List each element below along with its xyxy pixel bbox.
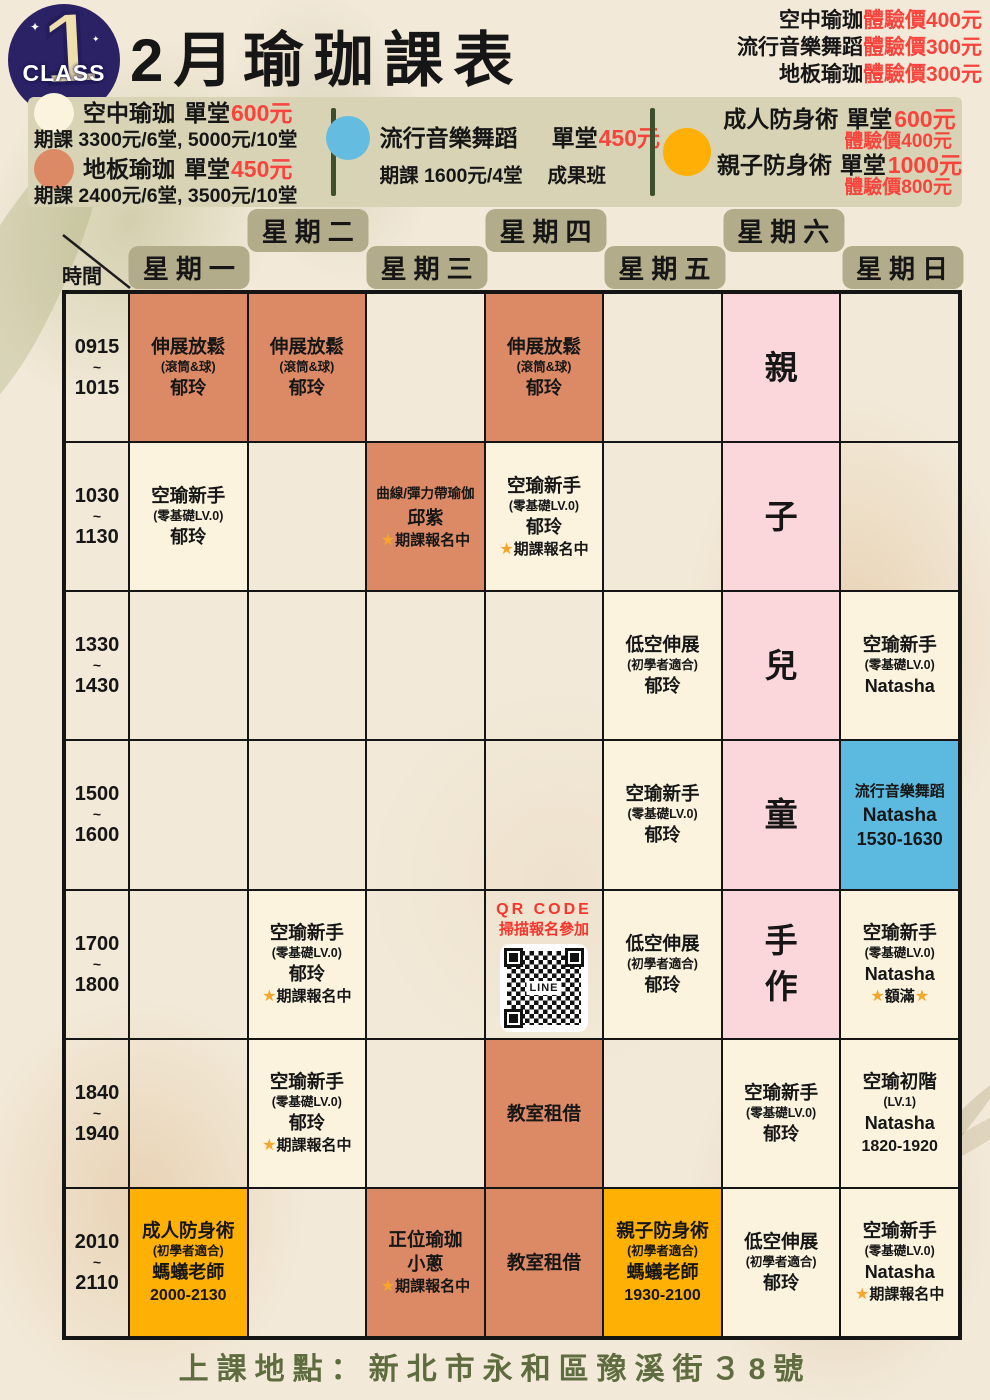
class-title: 空瑜新手: [270, 1070, 344, 1093]
star-icon: ★: [262, 988, 276, 1005]
teacher-name: 郁玲: [645, 674, 681, 698]
legend-name: 空中瑜珈: [83, 100, 175, 126]
trial-price-item: 空中瑜珈體驗價400元: [737, 7, 982, 34]
qr-signup-cell: QR CODE掃描報名參加LINE: [485, 890, 604, 1039]
time-end: 1940: [75, 1122, 120, 1146]
empty-cell: [248, 740, 367, 889]
legend-term-extra: 成果班: [548, 165, 607, 187]
legend-name: 地板瑜珈: [83, 156, 175, 182]
class-level: (零基礎LV.0): [746, 1105, 816, 1121]
legend-price: 600元: [894, 106, 955, 132]
class-title: 伸展放鬆: [507, 335, 581, 358]
theme-char: 子: [765, 494, 798, 540]
class-level: (初學者適合): [627, 956, 698, 972]
signup-note-text: 期課報名中: [395, 1278, 470, 1295]
trial-price: 體驗價300元: [863, 36, 982, 59]
class-title: 伸展放鬆: [151, 335, 225, 358]
class-level: (LV.1): [883, 1094, 916, 1110]
teacher-name: 郁玲: [526, 515, 562, 539]
day-slot: 星期六: [724, 214, 843, 290]
time-slot: 1500~1600: [65, 740, 129, 889]
class-title: 空瑜新手: [863, 633, 937, 656]
signup-note-text: 期課報名中: [514, 541, 589, 558]
empty-cell: [485, 591, 604, 740]
schedule-poster: 1 CLASS ✦ ✦ 2月瑜珈課表 空中瑜珈體驗價400元 流行音樂舞蹈體驗價…: [0, 0, 990, 1400]
legend-unit: 單堂: [184, 156, 230, 182]
empty-cell: [840, 293, 959, 442]
class-cell: 伸展放鬆(滾筒&球)郁玲: [485, 293, 604, 442]
signup-note-text: 期課報名中: [277, 988, 352, 1005]
empty-cell: [366, 1039, 485, 1188]
legend-item-dance: 流行音樂舞蹈 單堂450元: [326, 116, 660, 160]
day-badge-thursday: 星期四: [485, 209, 606, 252]
class-level: (零基礎LV.0): [272, 1094, 342, 1110]
class-level: (初學者適合): [153, 1243, 224, 1259]
qr-title: QR CODE: [496, 900, 592, 919]
time-start: 0915: [75, 335, 120, 359]
legend-price: 600元: [231, 100, 292, 126]
day-badge-tuesday: 星期二: [248, 209, 369, 252]
class-title: 空瑜新手: [863, 921, 937, 944]
class-title: 曲線/彈力帶瑜伽: [376, 482, 474, 505]
time-start: 2010: [75, 1230, 120, 1254]
class-cell: 正位瑜珈小蔥★期課報名中: [366, 1188, 485, 1337]
class-title: 成人防身術: [142, 1219, 235, 1242]
defense-adult-line: 成人防身術 單堂600元: [717, 106, 962, 132]
class-level: (零基礎LV.0): [865, 657, 935, 673]
time-slot: 0915~1015: [65, 293, 129, 442]
signup-note-text: 期課報名中: [277, 1137, 352, 1154]
legend-name: 成人防身術: [723, 106, 838, 132]
signup-note: ★額滿★: [870, 987, 929, 1007]
class-cell: 低空伸展(初學者適合)郁玲: [603, 591, 722, 740]
saturday-theme-cell: 兒: [722, 591, 841, 740]
teacher-name: 郁玲: [289, 962, 325, 986]
defense-kids-trial: 體驗價800元: [717, 178, 962, 198]
empty-cell: [248, 442, 367, 591]
teacher-name: 郁玲: [763, 1122, 799, 1146]
star-icon: ★: [915, 988, 929, 1005]
empty-cell: [366, 890, 485, 1039]
floor-color-dot-icon: [34, 149, 74, 189]
legend-term-floor: 期課 2400元/6堂, 3500元/10堂: [34, 185, 331, 208]
class-level: (零基礎LV.0): [627, 806, 697, 822]
legend-name: 親子防身術: [717, 152, 832, 178]
time-start: 1700: [75, 932, 120, 956]
day-slot: 星期一: [130, 214, 249, 290]
teacher-name: 郁玲: [645, 973, 681, 997]
sparkle-icon: ✦: [30, 20, 40, 34]
day-badge-friday: 星期五: [604, 246, 725, 289]
time-slot: 1840~1940: [65, 1039, 129, 1188]
defense-color-dot-icon: [663, 128, 711, 176]
sparkle-icon: ✦: [92, 34, 100, 45]
signup-note: ★期課報名中: [499, 540, 588, 560]
location-footer: 上課地點：新北市永和區豫溪街３8號: [0, 1344, 990, 1388]
day-badge-wednesday: 星期三: [367, 246, 488, 289]
signup-note-text: 期課報名中: [869, 1286, 944, 1303]
time-header-label: 時間: [62, 260, 102, 289]
theme-char: 手: [765, 918, 798, 964]
theme-char: 兒: [765, 643, 798, 689]
teacher-name: 郁玲: [526, 376, 562, 400]
class-level: (初學者適合): [746, 1254, 817, 1270]
class-cell: 空瑜新手(零基礎LV.0)Natasha★額滿★: [840, 890, 959, 1039]
teacher-name: 螞蟻老師: [627, 1260, 699, 1284]
teacher-name: 小蔥: [407, 1252, 443, 1276]
star-icon: ★: [499, 541, 513, 558]
empty-cell: [129, 1039, 248, 1188]
teacher-name: Natasha: [865, 1260, 935, 1284]
time-slot: 1330~1430: [65, 591, 129, 740]
empty-cell: [248, 591, 367, 740]
time-slot: 1030~1130: [65, 442, 129, 591]
time-end: 1800: [75, 973, 120, 997]
theme-char: 作: [765, 964, 798, 1010]
class-time: 1530-1630: [857, 829, 943, 850]
legend-term-dance: 期課 1600元/4堂 成果班: [380, 165, 606, 188]
saturday-theme-cell: 親: [722, 293, 841, 442]
class-level: (初學者適合): [627, 657, 698, 673]
empty-cell: [248, 1188, 367, 1337]
qr-line-label: LINE: [526, 981, 561, 995]
class-cell: 伸展放鬆(滾筒&球)郁玲: [129, 293, 248, 442]
class-cell: 空瑜新手(零基礎LV.0)郁玲★期課報名中: [485, 442, 604, 591]
course-name: 空中瑜珈: [779, 9, 863, 32]
qr-subtitle: 掃描報名參加: [499, 920, 589, 939]
class-cell: 空瑜新手(零基礎LV.0)Natasha: [840, 591, 959, 740]
teacher-name: 郁玲: [645, 823, 681, 847]
defense-kids-line: 親子防身術 單堂1000元: [717, 152, 962, 178]
teacher-name: 郁玲: [763, 1271, 799, 1295]
time-tilde: ~: [93, 509, 101, 524]
theme-char: 童: [765, 792, 798, 838]
signup-note: ★期課報名中: [262, 987, 351, 1007]
signup-note: ★期課報名中: [262, 1136, 351, 1156]
class-title: 正位瑜珈: [388, 1228, 462, 1251]
empty-cell: [485, 740, 604, 889]
time-slot: 1700~1800: [65, 890, 129, 1039]
trial-price-list: 空中瑜珈體驗價400元 流行音樂舞蹈體驗價300元 地板瑜珈體驗價300元: [737, 7, 982, 88]
time-tilde: ~: [93, 1106, 101, 1121]
time-tilde: ~: [93, 807, 101, 822]
star-icon: ★: [381, 1278, 395, 1295]
class-cell: 空瑜新手(零基礎LV.0)郁玲★期課報名中: [248, 890, 367, 1039]
class-cell: 空瑜新手(零基礎LV.0)Natasha★期課報名中: [840, 1188, 959, 1337]
legend-column-dance: 流行音樂舞蹈 單堂450元 期課 1600元/4堂 成果班: [336, 116, 650, 188]
time-start: 1500: [75, 782, 120, 806]
class-cell: 空瑜新手(零基礎LV.0)郁玲: [129, 442, 248, 591]
class-cell: 低空伸展(初學者適合)郁玲: [722, 1188, 841, 1337]
signup-note: ★期課報名中: [381, 531, 470, 551]
class-time: 2000-2130: [150, 1285, 227, 1306]
time-start: 1840: [75, 1081, 120, 1105]
saturday-theme-cell: 子: [722, 442, 841, 591]
empty-cell: [603, 1039, 722, 1188]
rental-cell: 教室租借: [485, 1039, 604, 1188]
time-end: 1600: [75, 823, 120, 847]
teacher-name: 郁玲: [170, 525, 206, 549]
class-level: (滾筒&球): [279, 359, 334, 375]
time-slot: 2010~2110: [65, 1188, 129, 1337]
empty-cell: [366, 591, 485, 740]
teacher-name: 郁玲: [170, 376, 206, 400]
legend-item-aerial: 空中瑜珈 單堂600元: [34, 93, 331, 133]
signup-note: ★期課報名中: [855, 1285, 944, 1305]
class-title: 流行音樂舞蹈: [855, 780, 945, 803]
trial-price-item: 地板瑜珈體驗價300元: [737, 61, 982, 88]
class-cell: 成人防身術(初學者適合)螞蟻老師2000-2130: [129, 1188, 248, 1337]
empty-cell: [129, 740, 248, 889]
legend-price: 1000元: [888, 152, 962, 178]
legend-bar: 空中瑜珈 單堂600元 期課 3300元/6堂, 5000元/10堂 地板瑜珈 …: [28, 97, 962, 207]
legend-unit: 單堂: [840, 152, 886, 178]
day-slot: 星期三: [368, 214, 487, 290]
class-cell: 曲線/彈力帶瑜伽邱紫★期課報名中: [366, 442, 485, 591]
teacher-name: Natasha: [863, 804, 937, 828]
aerial-color-dot-icon: [34, 93, 74, 133]
class-title: 空瑜新手: [151, 484, 225, 507]
day-badge-monday: 星期一: [129, 246, 250, 289]
teacher-name: Natasha: [865, 674, 935, 698]
time-end: 1430: [75, 674, 120, 698]
legend-column-defense: 成人防身術 單堂600元 體驗價400元 親子防身術 單堂1000元 體驗價80…: [655, 106, 962, 198]
class-cell: 親子防身術(初學者適合)螞蟻老師1930-2100: [603, 1188, 722, 1337]
class-title: 低空伸展: [626, 932, 700, 955]
time-tilde: ~: [93, 957, 101, 972]
teacher-name: 邱紫: [407, 506, 443, 530]
star-icon: ★: [870, 988, 884, 1005]
saturday-theme-cell: 手作: [722, 890, 841, 1039]
class-time: 1930-2100: [624, 1285, 701, 1306]
schedule-grid: 0915~1015伸展放鬆(滾筒&球)郁玲伸展放鬆(滾筒&球)郁玲伸展放鬆(滾筒…: [62, 290, 962, 1340]
legend-unit: 單堂: [552, 125, 598, 151]
teacher-name: 螞蟻老師: [152, 1260, 224, 1284]
empty-cell: [603, 442, 722, 591]
signup-note-text: 期課報名中: [395, 532, 470, 549]
class-title: 低空伸展: [626, 633, 700, 656]
class-title: 低空伸展: [744, 1230, 818, 1253]
rental-cell: 教室租借: [485, 1188, 604, 1337]
legend-price: 450元: [231, 156, 292, 182]
page-title: 2月瑜珈課表: [130, 12, 523, 99]
time-tilde: ~: [93, 658, 101, 673]
teacher-name: 郁玲: [289, 376, 325, 400]
star-icon: ★: [855, 1286, 869, 1303]
class-level: (零基礎LV.0): [509, 498, 579, 514]
class-title: 空瑜新手: [270, 921, 344, 944]
empty-cell: [366, 293, 485, 442]
empty-cell: [366, 740, 485, 889]
teacher-name: Natasha: [865, 962, 935, 986]
day-badge-saturday: 星期六: [723, 209, 844, 252]
day-slot: 星期二: [249, 214, 368, 290]
class-level: (零基礎LV.0): [865, 1243, 935, 1259]
class-time: 1820-1920: [861, 1136, 938, 1157]
class-level: (滾筒&球): [517, 359, 572, 375]
empty-cell: [840, 442, 959, 591]
class-cell: 空瑜初階(LV.1)Natasha1820-1920: [840, 1039, 959, 1188]
class-title: 空瑜新手: [626, 782, 700, 805]
course-name: 地板瑜珈: [779, 63, 863, 86]
class-level: (零基礎LV.0): [272, 945, 342, 961]
defense-adult-trial: 體驗價400元: [717, 132, 962, 152]
legend-unit: 單堂: [184, 100, 230, 126]
legend-column-yoga: 空中瑜珈 單堂600元 期課 3300元/6堂, 5000元/10堂 地板瑜珈 …: [28, 96, 331, 208]
day-badge-sunday: 星期日: [842, 246, 963, 289]
time-end: 1130: [75, 525, 118, 549]
class-cell: 伸展放鬆(滾筒&球)郁玲: [248, 293, 367, 442]
time-tilde: ~: [93, 360, 101, 375]
time-corner: 時間: [60, 230, 132, 290]
legend-name: 流行音樂舞蹈: [380, 125, 518, 151]
class-level: (零基礎LV.0): [153, 508, 223, 524]
class-title: 空瑜新手: [863, 1219, 937, 1242]
empty-cell: [129, 890, 248, 1039]
class-title: 教室租借: [507, 1102, 581, 1125]
legend-item-floor: 地板瑜珈 單堂450元: [34, 149, 331, 189]
logo-text: CLASS: [8, 60, 120, 87]
time-tilde: ~: [93, 1255, 101, 1270]
day-slot: 星期五: [605, 214, 724, 290]
class-title: 空瑜初階: [863, 1070, 937, 1093]
class-cell: 空瑜新手(零基礎LV.0)郁玲★期課報名中: [248, 1039, 367, 1188]
class-title: 伸展放鬆: [270, 335, 344, 358]
class-level: (零基礎LV.0): [865, 945, 935, 961]
time-start: 1330: [75, 633, 120, 657]
trial-price: 體驗價400元: [863, 9, 982, 32]
logo-number: 1: [37, 0, 103, 104]
time-start: 1030: [75, 484, 120, 508]
day-slot: 星期四: [487, 214, 606, 290]
course-name: 流行音樂舞蹈: [737, 36, 863, 59]
day-slot: 星期日: [843, 214, 962, 290]
teacher-name: 郁玲: [289, 1111, 325, 1135]
class-cell: 流行音樂舞蹈Natasha1530-1630: [840, 740, 959, 889]
class-title: 空瑜新手: [744, 1081, 818, 1104]
class-cell: 空瑜新手(零基礎LV.0)郁玲: [722, 1039, 841, 1188]
day-header-row: 星期一 星期二 星期三 星期四 星期五 星期六 星期日: [130, 214, 962, 290]
star-icon: ★: [381, 532, 395, 549]
empty-cell: [603, 293, 722, 442]
signup-note: ★期課報名中: [381, 1277, 470, 1297]
star-icon: ★: [262, 1137, 276, 1154]
trial-price: 體驗價300元: [863, 63, 982, 86]
qr-code-icon: LINE: [500, 944, 588, 1032]
class-title: 親子防身術: [616, 1219, 709, 1242]
legend-unit: 單堂: [846, 106, 892, 132]
legend-item-defense: 成人防身術 單堂600元 體驗價400元 親子防身術 單堂1000元 體驗價80…: [717, 106, 962, 198]
class-cell: 空瑜新手(零基礎LV.0)郁玲: [603, 740, 722, 889]
class-level: (滾筒&球): [161, 359, 216, 375]
legend-term-text: 期課 1600元/4堂: [380, 165, 523, 187]
class-cell: 低空伸展(初學者適合)郁玲: [603, 890, 722, 1039]
saturday-theme-cell: 童: [722, 740, 841, 889]
class-title: 空瑜新手: [507, 474, 581, 497]
class-level: (初學者適合): [627, 1243, 698, 1259]
trial-price-item: 流行音樂舞蹈體驗價300元: [737, 34, 982, 61]
dance-color-dot-icon: [326, 116, 370, 160]
theme-char: 親: [765, 345, 798, 391]
time-end: 1015: [75, 376, 120, 400]
time-end: 2110: [75, 1271, 118, 1295]
teacher-name: Natasha: [865, 1111, 935, 1135]
signup-note-text: 額滿: [885, 988, 915, 1005]
empty-cell: [129, 591, 248, 740]
class-title: 教室租借: [507, 1251, 581, 1274]
